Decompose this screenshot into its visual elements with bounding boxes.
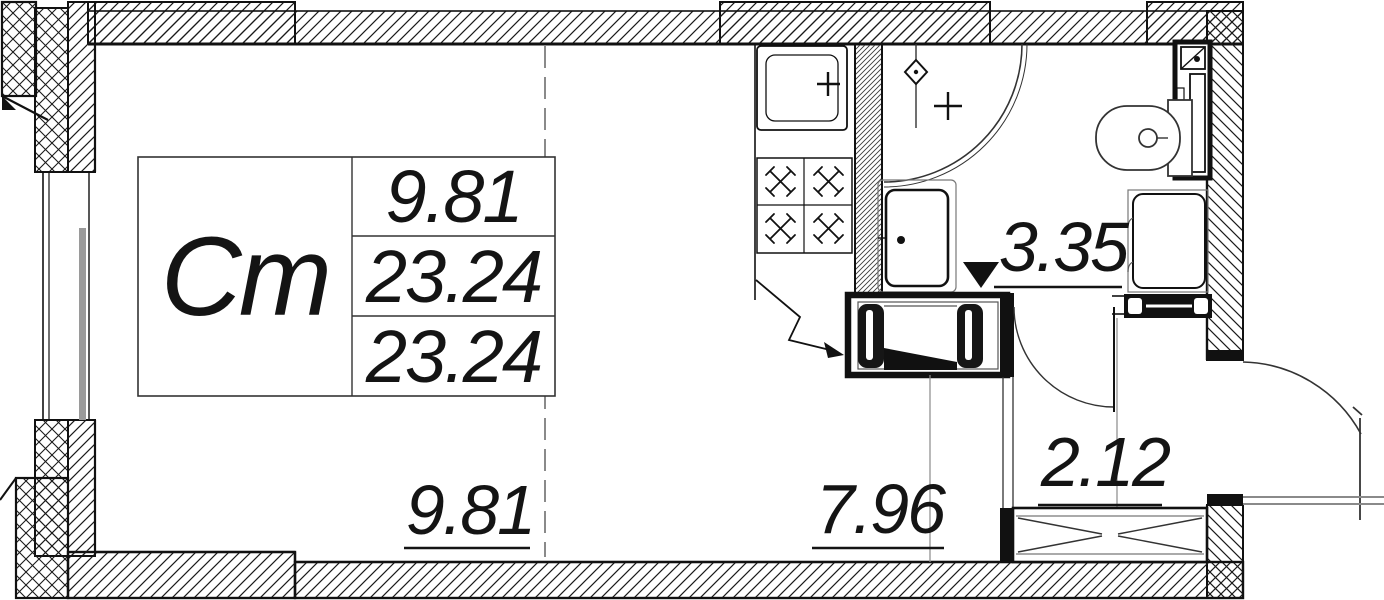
bottom-wall-thick — [68, 552, 295, 598]
window-frame-shadow — [79, 228, 86, 420]
bathroom-door-post — [1000, 293, 1014, 377]
kitchen-sink — [757, 46, 847, 130]
duct-door-unit — [848, 295, 1007, 375]
bathroom-sink — [878, 180, 956, 292]
wardrobe-end-cap — [1000, 508, 1014, 562]
bathroom-door — [1014, 307, 1117, 508]
washing-machine — [1128, 190, 1208, 292]
doorway-cap-bottom — [1207, 494, 1243, 505]
radiator-bar — [1124, 294, 1212, 318]
burner-icon — [814, 167, 843, 196]
burner-icon — [766, 214, 795, 243]
area-table — [138, 157, 555, 396]
stove — [757, 158, 852, 253]
top-wall-band — [88, 11, 1243, 44]
outer-stub-bottom-left — [16, 478, 68, 598]
doorway-cap-top — [1207, 350, 1243, 361]
toilet-flush-icon — [1139, 129, 1157, 147]
window — [35, 172, 95, 420]
outer-stub-top-left — [2, 2, 36, 96]
burner-icon — [814, 214, 843, 243]
bottom-wall-band — [295, 562, 1243, 598]
outer-stub-bottom-diagonal — [0, 478, 16, 500]
toilet — [1096, 100, 1192, 176]
bathroom — [878, 42, 1212, 318]
left-pier-top-hatch — [68, 2, 95, 172]
left-pier-bottom-hatch — [68, 420, 95, 556]
burner-icon — [766, 167, 795, 196]
level-marker-icon — [963, 262, 999, 288]
kitchen — [755, 44, 852, 300]
entrance-swing-arc — [1243, 362, 1361, 434]
left-pier-top-crosshatch — [35, 8, 68, 172]
entrance-door — [1243, 362, 1384, 520]
door-swing-arc — [1014, 307, 1114, 407]
leader-arrow — [756, 280, 844, 358]
corner-shower — [884, 44, 1027, 187]
floorplan-drawing — [0, 0, 1384, 600]
floorplan-canvas: Ст 9.81 23.24 23.24 9.81 7.96 3.35 2.12 — [0, 0, 1384, 600]
wardrobe — [1000, 508, 1207, 562]
